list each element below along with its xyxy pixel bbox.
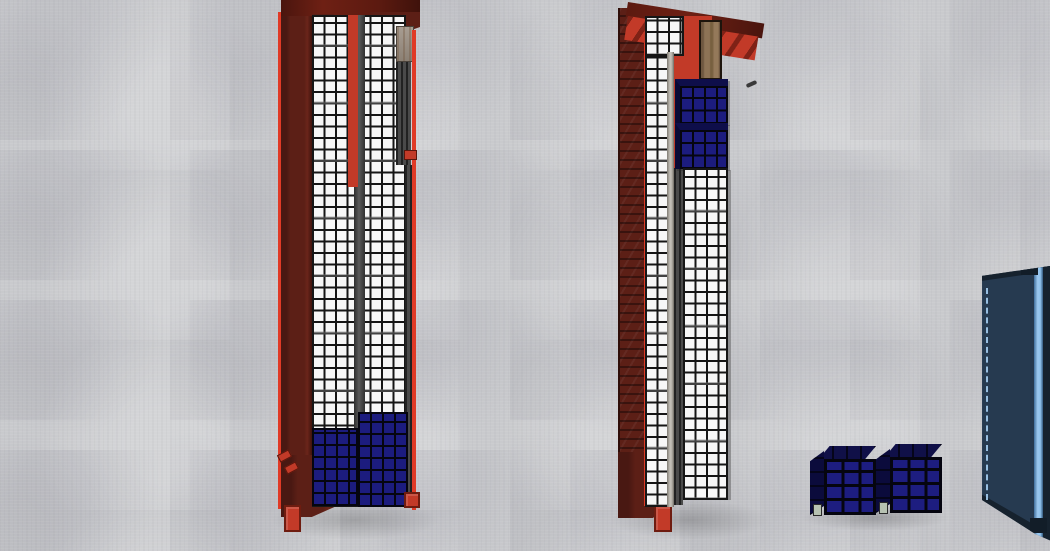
container-middle-wall [618,8,644,458]
container-left-floor-gap [348,15,358,187]
cargo-blue-boxes-left-a [312,428,358,506]
container-left-rail-connector [404,150,417,160]
cargo-blue-stack-lower [675,123,728,169]
stack1-top-face [818,446,876,460]
cargo-side-faces-upper [396,58,411,165]
stack2-pallet-foot [879,502,888,514]
cargo-blue-stack-upper [675,79,728,124]
container-left-rail-right [412,30,416,510]
container-left-bracket [404,492,420,508]
cargo-white-boxes-middle-areaB [683,168,728,500]
blue-container-cut-edge [1043,262,1050,546]
stack2-top-face [884,444,942,458]
container-middle-silver-rail [667,52,674,507]
stack1-front-face [824,459,876,515]
blue-box-stack-2[interactable] [876,444,944,518]
debris-mark [746,80,758,88]
blue-container-corner-casting-top [1021,263,1038,275]
stack1-pallet-foot [813,504,822,516]
blue-container-side-stripe [1034,264,1043,544]
blue-container-roof-seam [986,288,988,500]
container-left-wall [281,10,312,460]
stack2-front-face [890,457,942,513]
blue-box-stack-1[interactable] [810,446,878,520]
container-middle-corner-foot [654,505,672,532]
shipping-container-middle[interactable] [616,0,766,534]
cargo-blue-boxes-left-b [358,412,408,507]
cargo-side-faces-middle [674,168,683,505]
container-middle-wood-panel [699,20,722,80]
cargo-right-shadow [728,170,731,500]
shipping-container-left[interactable] [276,0,422,534]
cargo-white-boxes-middle-top [645,16,684,56]
shipping-container-blue-partial[interactable] [978,262,1050,546]
blue-container-corner-casting-bottom [1030,518,1047,533]
container-left-corner-foot [284,505,301,532]
viewport-3d[interactable] [0,0,1050,551]
